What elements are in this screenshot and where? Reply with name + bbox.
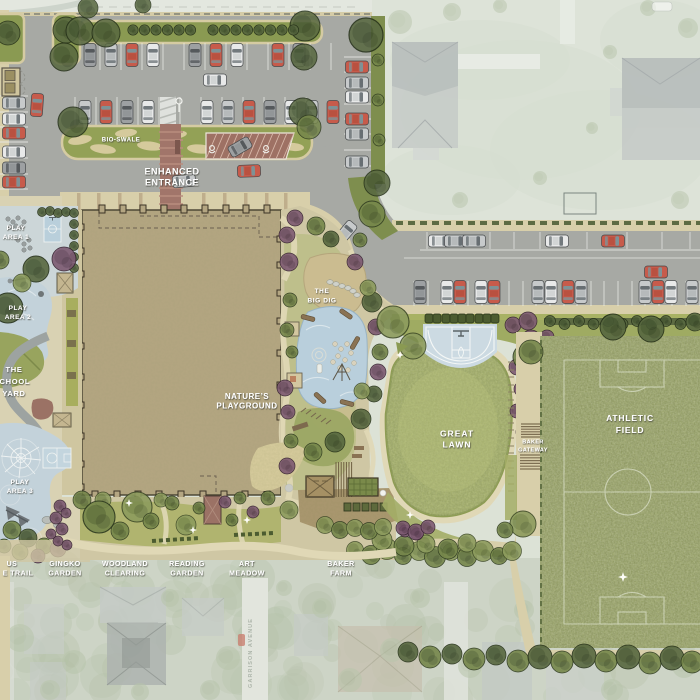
svg-text:THE: THE	[315, 288, 330, 295]
svg-text:BAKER: BAKER	[522, 440, 544, 446]
svg-text:CLEARING: CLEARING	[105, 571, 146, 578]
svg-text:READING: READING	[169, 561, 205, 568]
svg-text:NATURE’S: NATURE’S	[225, 392, 269, 401]
svg-text:ART: ART	[239, 561, 255, 568]
svg-text:E TRAIL: E TRAIL	[3, 571, 34, 578]
svg-text:PLAY: PLAY	[11, 479, 30, 486]
svg-text:ENHANCED: ENHANCED	[144, 167, 199, 177]
svg-text:US: US	[7, 561, 18, 568]
svg-text:GARDEN: GARDEN	[170, 571, 203, 578]
svg-text:GARDEN: GARDEN	[48, 571, 81, 578]
svg-text:GATEWAY: GATEWAY	[518, 448, 548, 454]
svg-text:ATHLETIC: ATHLETIC	[606, 413, 654, 423]
svg-text:GREAT: GREAT	[440, 429, 474, 439]
svg-text:FARM: FARM	[330, 571, 352, 578]
svg-text:PLAY: PLAY	[7, 225, 26, 232]
svg-text:GINGKO: GINGKO	[49, 561, 80, 568]
svg-text:BIG DIG: BIG DIG	[307, 298, 336, 305]
svg-text:AREA 3: AREA 3	[7, 488, 34, 495]
svg-text:AREA 1: AREA 1	[3, 234, 30, 241]
svg-text:AREA 2: AREA 2	[5, 314, 32, 321]
svg-text:FIELD: FIELD	[616, 425, 645, 435]
svg-text:YARD: YARD	[2, 389, 25, 398]
svg-text:ENTRANCE: ENTRANCE	[145, 178, 199, 188]
svg-text:SCHOOL: SCHOOL	[0, 377, 30, 386]
svg-text:PLAY: PLAY	[9, 305, 28, 312]
svg-text:THE: THE	[5, 365, 22, 374]
svg-text:GARRISON AVENUE: GARRISON AVENUE	[248, 618, 254, 688]
svg-text:MEADOW: MEADOW	[229, 571, 265, 578]
svg-text:BIO-SWALE: BIO-SWALE	[102, 138, 141, 144]
svg-text:WOODLAND: WOODLAND	[102, 561, 148, 568]
svg-text:LAWN: LAWN	[442, 440, 471, 450]
svg-text:BAKER: BAKER	[327, 561, 354, 568]
svg-text:PLAYGROUND: PLAYGROUND	[216, 402, 277, 411]
